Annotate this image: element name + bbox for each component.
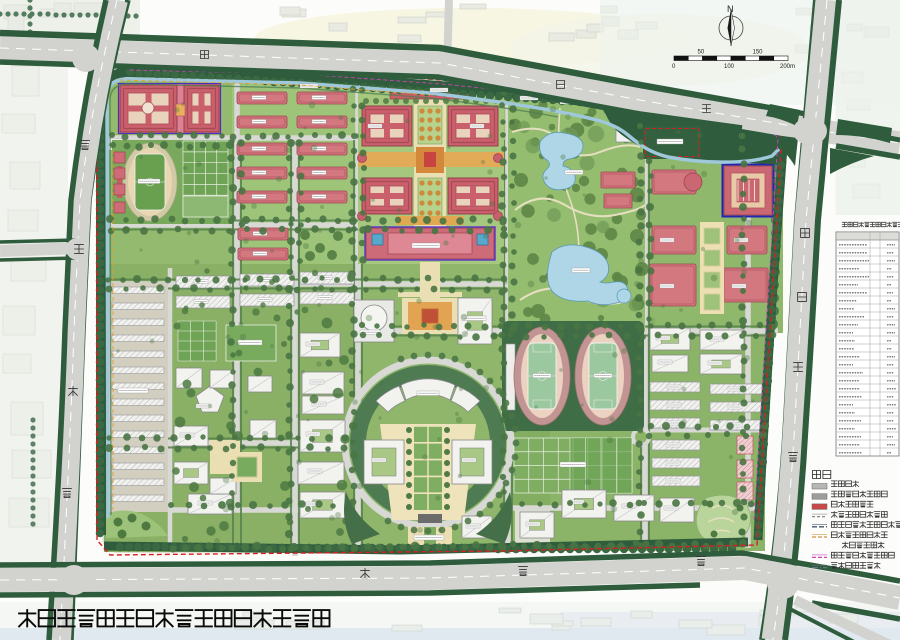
svg-text:200m: 200m [780, 64, 795, 70]
svg-text:50: 50 [698, 50, 705, 56]
svg-text:150: 150 [753, 50, 764, 56]
svg-text:N: N [727, 4, 734, 14]
svg-text:100: 100 [724, 64, 735, 70]
